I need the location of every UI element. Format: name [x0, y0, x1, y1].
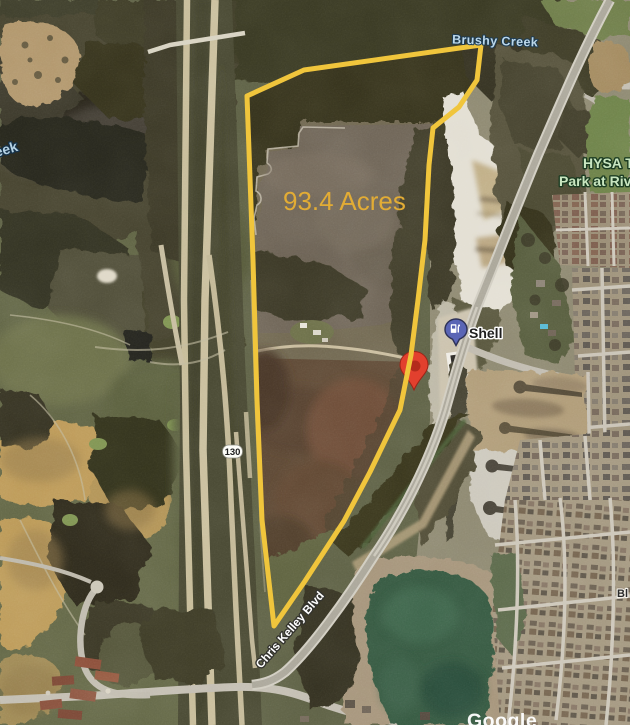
- svg-text:Google: Google: [467, 710, 537, 725]
- svg-text:130: 130: [225, 447, 241, 458]
- svg-text:93.4 Acres: 93.4 Acres: [283, 186, 406, 216]
- svg-text:Bl: Bl: [617, 588, 628, 600]
- svg-text:Park at Riv: Park at Riv: [559, 173, 630, 189]
- svg-text:Shell: Shell: [469, 325, 502, 341]
- svg-text:HYSA T: HYSA T: [583, 155, 630, 171]
